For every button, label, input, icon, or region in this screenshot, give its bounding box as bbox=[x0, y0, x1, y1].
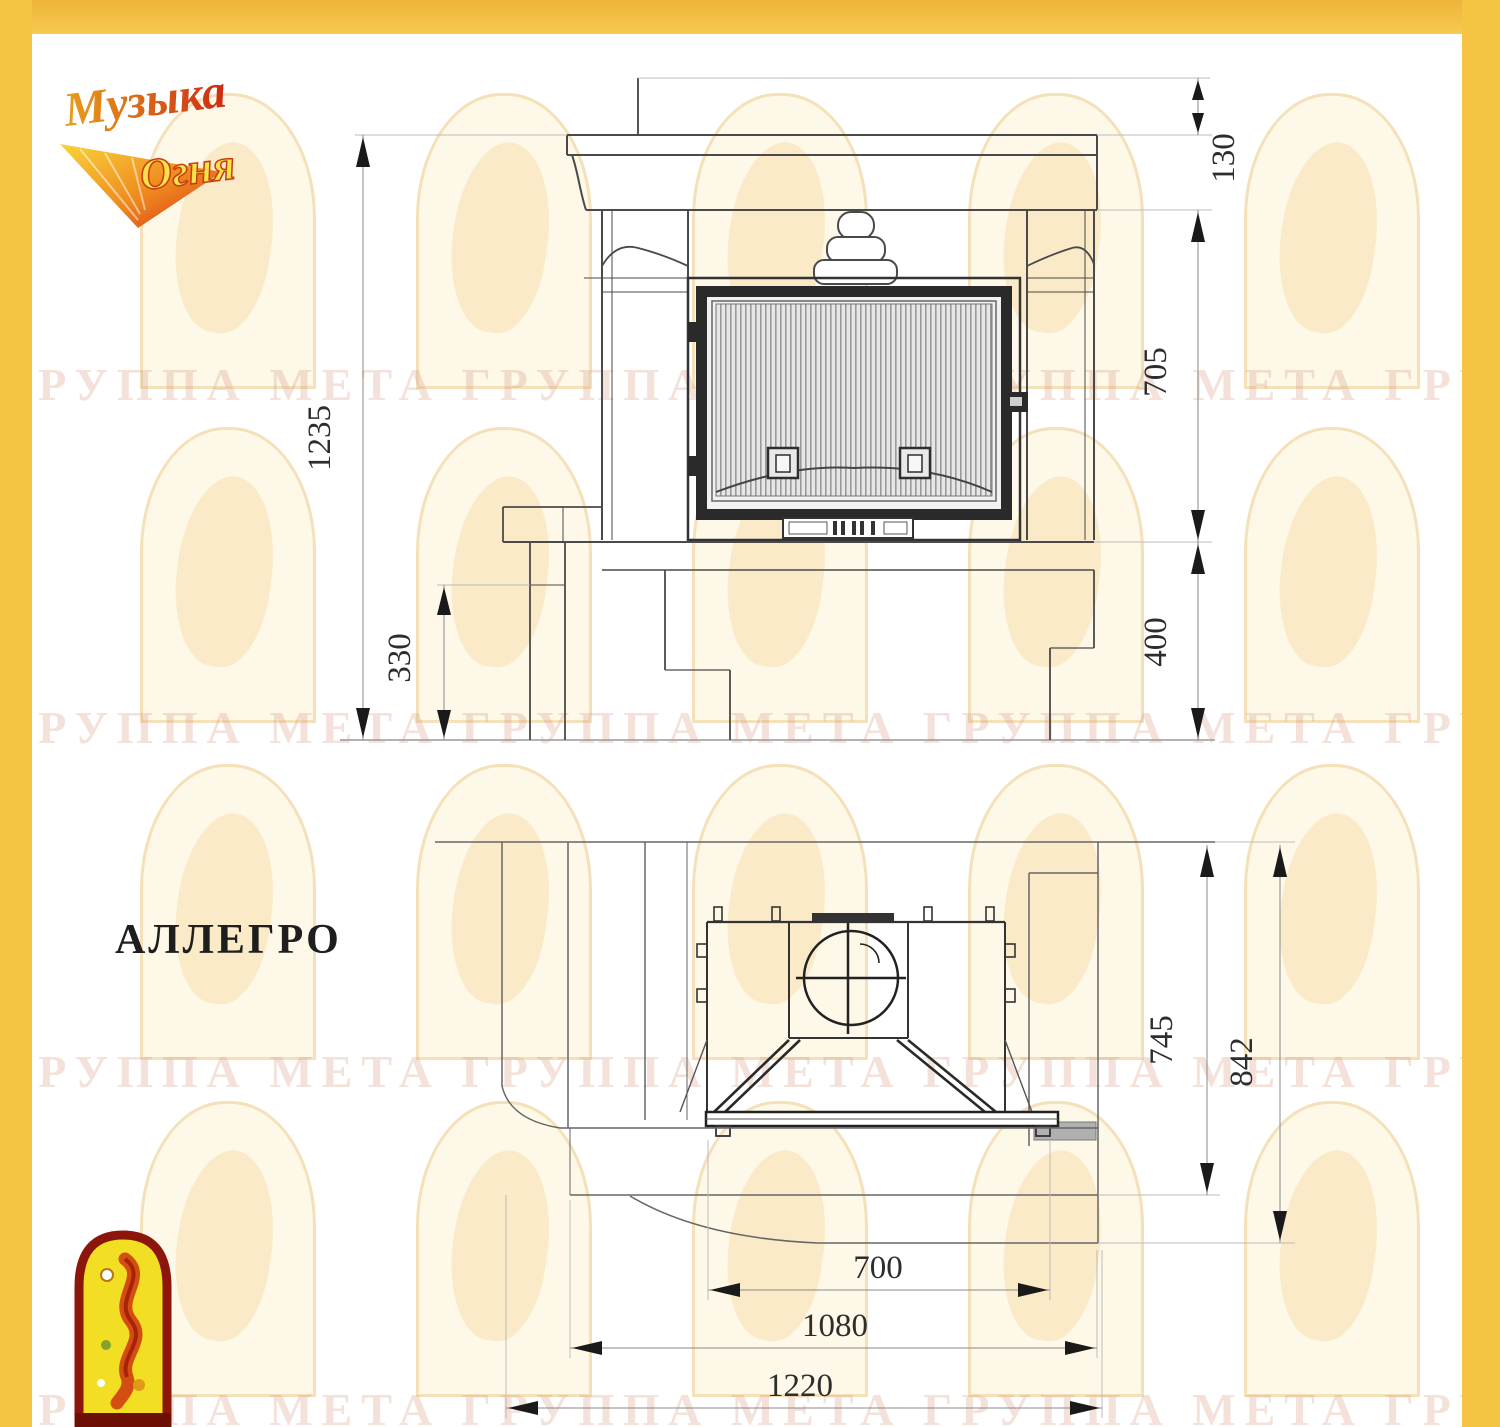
dim-label-total-width: 1220 bbox=[767, 1368, 833, 1404]
firebox-plan bbox=[680, 907, 1058, 1136]
flame-emblem bbox=[73, 1225, 173, 1427]
logo-word-2: Огня bbox=[137, 140, 237, 200]
dimension-firebox-width: 700 bbox=[708, 1140, 1050, 1300]
plan-view-drawing: 745 842 700 bbox=[435, 842, 1295, 1418]
dimension-body-width: 1080 bbox=[570, 1200, 1097, 1358]
dimension-base-height: 400 bbox=[1138, 542, 1205, 740]
dimension-total-depth: 842 bbox=[1224, 845, 1287, 1243]
firebox bbox=[688, 278, 1028, 540]
dim-label-total-height: 1235 bbox=[302, 405, 338, 471]
hood-splay bbox=[714, 1040, 996, 1112]
dim-label-hearth-ledge-height: 330 bbox=[382, 633, 418, 683]
dim-label-firebox-width: 700 bbox=[853, 1250, 903, 1286]
front-elevation-drawing: 1235 330 130 bbox=[302, 78, 1242, 740]
platform-plan bbox=[560, 1128, 1098, 1243]
vent-grille bbox=[783, 518, 913, 538]
model-title: АЛЛЕГРО bbox=[115, 916, 342, 964]
dimension-total-height: 1235 bbox=[302, 135, 567, 740]
logo-word-1: Музыка bbox=[60, 65, 229, 138]
dimension-mantel-top-offset: 130 bbox=[1192, 78, 1242, 183]
frame-border-right bbox=[1462, 0, 1500, 1427]
dim-label-total-depth: 842 bbox=[1224, 1037, 1260, 1087]
dim-label-mantel-top-offset: 130 bbox=[1206, 133, 1242, 183]
flue-collar-plan bbox=[812, 913, 894, 922]
dim-label-body-depth: 745 bbox=[1144, 1015, 1180, 1065]
dim-label-opening-height: 705 bbox=[1138, 347, 1174, 397]
left-wall-plan bbox=[502, 842, 687, 1128]
dim-label-body-width: 1080 bbox=[802, 1308, 868, 1344]
frame-border-left bbox=[0, 0, 32, 1427]
brand-logo: Музыка Огня bbox=[50, 52, 285, 242]
mantel-shelf bbox=[567, 135, 1097, 210]
dimension-opening-height: 705 bbox=[1138, 210, 1205, 542]
frame-border-top bbox=[0, 0, 1500, 34]
door-hinge-icon bbox=[688, 456, 700, 476]
dimension-total-width: 1220 bbox=[506, 1195, 1102, 1418]
hearth-and-base bbox=[503, 507, 1094, 740]
dimension-hearth-ledge-height: 330 bbox=[382, 585, 530, 740]
dim-label-base-height: 400 bbox=[1138, 617, 1174, 667]
door-hinge-icon bbox=[688, 322, 700, 342]
catalog-page: ГРУППА МЕТА ГРУППА МЕТА ГРУППА МЕТА ГРУП… bbox=[0, 0, 1500, 1427]
dimension-body-depth: 745 bbox=[1144, 845, 1214, 1195]
right-wall-plan bbox=[1029, 842, 1098, 1146]
keystone-decoration bbox=[814, 212, 897, 284]
